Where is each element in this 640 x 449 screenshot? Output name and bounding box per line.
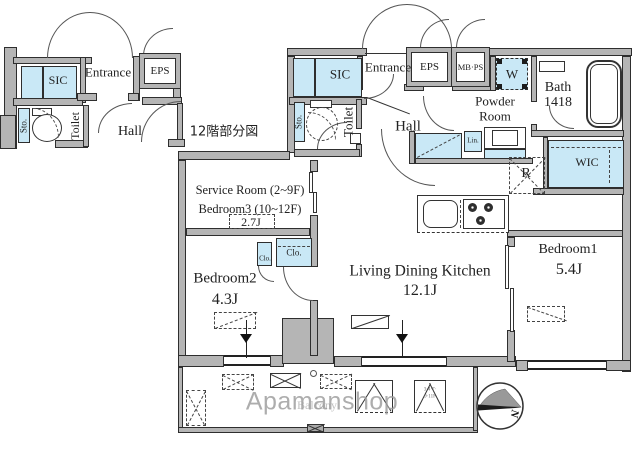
entrance-inner-door-arc [364,74,394,99]
inset-entrance-label: Entrance [85,66,131,79]
washer-tap-mark [522,84,527,89]
inset-eps-door-arc [143,28,173,56]
hall-label: Hall [395,120,421,135]
inset-wall-toilet-right [83,105,89,147]
stove-burner [468,203,477,212]
bedroom1-size-label: 5.4J [556,262,582,278]
bedroom2-window [224,355,270,366]
entrance-label: Entrance [365,61,411,74]
bedroom1-label: Bedroom1 [538,243,597,257]
wall-wing-right-upper [310,160,318,172]
powder-room-door-arc [423,96,454,131]
inset-caption: 12階部分図 [190,126,259,139]
ldk-size-label: 12.1J [403,283,437,299]
bedroom1-window [528,360,606,370]
inset-wall-entrance-bottom [128,93,139,101]
inset-toilet-door-arc [33,108,59,138]
inset-entrance-door-arc [47,12,133,58]
closet-large-label: Clo. [286,249,301,258]
wall-top-left [287,48,367,56]
stove-burner [476,216,485,225]
serviceroom-sliding-door [309,172,313,193]
inset-toilet-label: Toilet [69,112,81,140]
fridge-label: R [521,167,530,181]
balcony-railing [178,427,478,433]
wall-bedroom1-top [507,230,623,237]
toilet-label: Toilet [342,107,355,137]
linen-label: Lin. [467,138,478,145]
wic-pole [551,147,621,148]
ac-floors-label: 9·11F [424,394,436,400]
stove-burner [484,203,493,212]
wall-wic-bottom [533,188,624,195]
washer-tap-mark [497,59,502,64]
section-marker-arrow [240,334,252,343]
entrance-step-line [367,97,410,114]
structural-pillar [282,318,334,364]
wall-bedroom1-left-stub-lower [507,330,515,362]
bedroom1-sliding-door [505,245,509,289]
mbps-label: MB·PS [458,62,484,72]
powder-room-label: Room [479,110,511,123]
bath-counter [539,61,565,72]
floor-plan: EPS SIC Entrance Sto. Toilet Hall 12階部分図 [0,0,640,449]
inset-sic-label: SIC [49,74,68,86]
wall-wing-top [178,151,290,160]
inset-wall-left-lower [0,115,16,149]
eps-shaft: EPS [407,48,452,86]
wall-ldk-bottom-right [446,356,516,367]
serviceroom-size-label: 2.7J [241,216,261,228]
bathtub-inner [590,64,618,124]
wall-bedroom1-bottom-left [516,360,528,371]
balcony-wall-left [178,367,183,432]
wall-bedroom2-bottom-left [178,355,224,367]
bath-size-label: 1418 [544,96,572,110]
closet-door-arc [258,266,274,282]
ldk-window [362,356,446,367]
wall-serviceroom-bedroom2 [186,228,310,236]
serviceroom-sliding-door [313,192,317,213]
sic-cabinet [293,58,315,97]
washer-label: W [506,68,518,81]
watermark: Apamanshop [246,388,398,417]
wic-label: WIC [575,156,598,168]
bedroom2-size-label: 4.3J [212,292,238,308]
wall-bath-bottom [531,130,624,137]
wall-toilet-bottom [294,149,360,157]
wall-bath-left-upper [531,56,537,102]
watermark-degree-mark [310,370,317,377]
kitchen-sink [423,200,458,228]
eps-label: EPS [420,61,439,73]
wall-right [622,56,631,372]
ldk-label: Living Dining Kitchen [349,263,490,279]
wall-wing-right-lower [310,300,318,356]
mbps-door-arc [456,19,485,48]
inset-storage-label: Sto. [20,119,29,133]
vanity-sink [492,130,518,146]
ac-floors-label: 3·4·7· [424,387,437,393]
wall-ldk-bottom-left [334,356,362,367]
inset-wall-entrance-bottom [77,93,97,101]
washer-tap-mark [522,59,527,64]
inset-hall-door-arc [141,101,181,142]
bedroom2-door-arc [283,267,313,301]
mbps-shaft: MB·PS [452,48,489,86]
inset-wall-sic-bottom [13,98,83,106]
bedroom1-sliding-door [510,288,514,332]
wall-bedroom1-bottom-right [606,360,631,371]
wall-wing-left [178,160,186,357]
wic-shelf [609,150,610,183]
ldk-door-arc [381,129,435,186]
serviceroom-label: Service Room (2~9F) [196,184,305,197]
bedroom2-label: Bedroom2 [193,272,256,287]
sic-label: SIC [330,68,350,81]
compass: N [474,380,526,432]
kitchen-divider [460,200,461,228]
entrance-threshold-line [365,53,410,54]
powder-room-label: Powder [475,95,515,108]
washer-tap-mark [497,84,502,89]
storage-label: Sto. [295,115,304,129]
inset-eps-shaft: EPS [140,54,180,88]
bath-label: Bath [545,81,571,95]
wall-toilet-right-upper [356,99,362,129]
serviceroom-alt-label: Bedroom3 (10~12F) [199,203,302,216]
inset-hall-label: Hall [118,125,142,139]
closet-small-label: Clo. [259,256,271,263]
section-marker-arrow [396,334,408,343]
inset-eps-label: EPS [151,65,170,77]
